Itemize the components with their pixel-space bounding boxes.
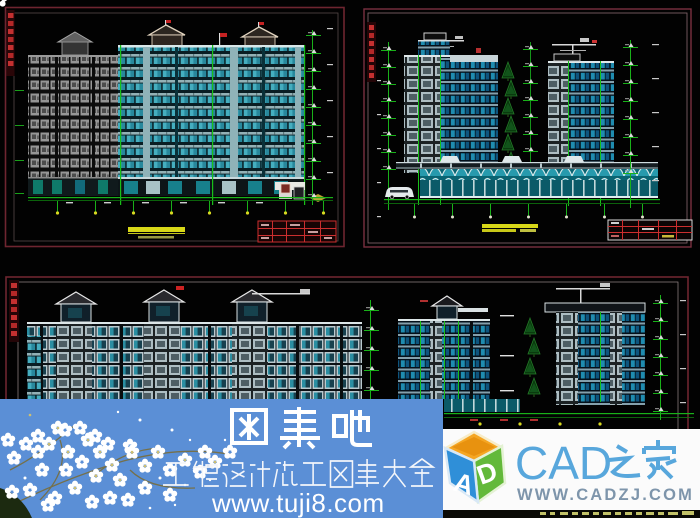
- svg-text:www.tuji8.com: www.tuji8.com: [211, 488, 385, 518]
- svg-text:CAD: CAD: [515, 437, 612, 489]
- svg-text:WWW.CADZJ.COM: WWW.CADZJ.COM: [517, 486, 694, 504]
